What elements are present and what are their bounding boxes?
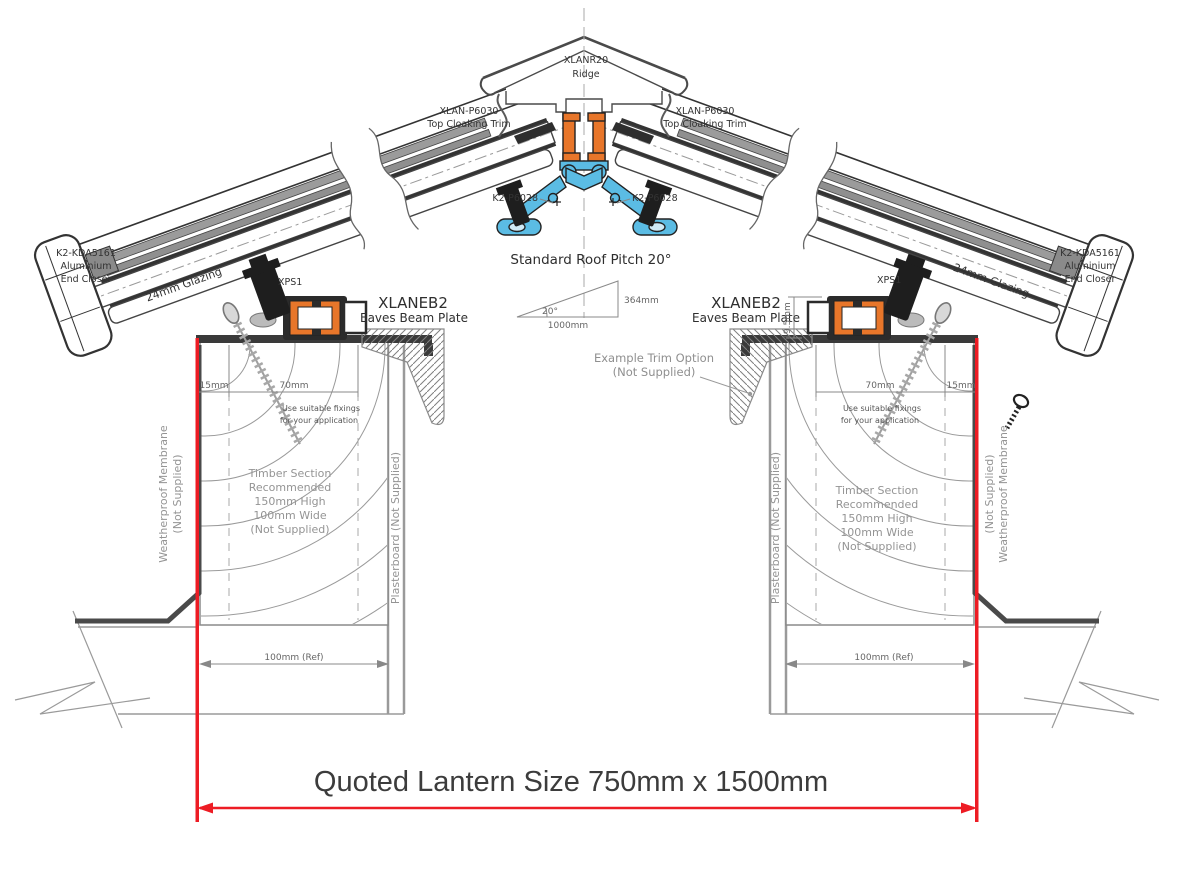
timber-l2-left: Recommended (249, 481, 332, 494)
timber-l3-left: 150mm High (254, 495, 325, 508)
dim-15-right: 15mm (947, 381, 976, 391)
plasterboard-left: Plasterboard (Not Supplied) (389, 452, 402, 604)
timber-l4-left: 100mm Wide (253, 509, 327, 522)
technical-drawing-page: XLANR20 Ridge XLAN-P6030 Top Cloaking Tr… (0, 0, 1184, 872)
timber-l4-right: 100mm Wide (840, 526, 914, 539)
dim-70-right: 70mm (866, 381, 895, 391)
eaves-code-right: XLANEB2 (711, 294, 781, 312)
xps-label-left: XPS1 (278, 277, 302, 288)
membrane-l2-left: (Not Supplied) (171, 454, 184, 533)
dim-70-left: 70mm (280, 381, 309, 391)
cloaking-code-left: XLAN-P6030 (440, 106, 499, 117)
end-closer-l2-left: Aluminium (61, 261, 112, 272)
membrane-l2-right: (Not Supplied) (983, 454, 996, 533)
cloaking-name-right: Top Cloaking Trim (662, 119, 746, 130)
timber-l1-right: Timber Section (835, 484, 919, 497)
end-closer-l2-right: Aluminium (1065, 261, 1116, 272)
plate-code-left: K2-P6028 (492, 193, 538, 204)
pitch-angle: 20° (542, 307, 558, 317)
fixings-l2-right: for your application (841, 416, 919, 425)
end-closer-l3-right: End Closer (1065, 274, 1116, 285)
timber-l5-left: (Not Supplied) (250, 523, 329, 536)
quoted-size-label: Quoted Lantern Size 750mm x 1500mm (314, 766, 828, 798)
loose-screw-icon (1007, 392, 1030, 428)
trim-option-l2: (Not Supplied) (613, 365, 696, 379)
plate-code-right: K2-P6028 (632, 193, 678, 204)
eaves-code-left: XLANEB2 (378, 294, 448, 312)
end-closer-code-left: K2-KDA5161 (56, 248, 116, 259)
end-closer-l3-left: End Closer (61, 274, 112, 285)
ridge-code-label: XLANR20 (564, 55, 608, 66)
membrane-l1-left: Weatherproof Membrane (157, 425, 170, 563)
dim-15-left: 15mm (200, 381, 229, 391)
pitch-run: 1000mm (548, 321, 588, 331)
pitch-note: Standard Roof Pitch 20° (510, 252, 671, 268)
membrane-l1-right: Weatherproof Membrane (997, 425, 1010, 563)
timber-l5-right: (Not Supplied) (837, 540, 916, 553)
eaves-name-left: Eaves Beam Plate (360, 311, 468, 325)
fixings-l1-left: Use suitable fixings (282, 404, 360, 413)
xps-label-right: XPS1 (877, 275, 901, 286)
lantern-section-drawing: XLANR20 Ridge XLAN-P6030 Top Cloaking Tr… (0, 0, 1184, 872)
quoted-size-dimension (197, 803, 977, 814)
pitch-triangle (517, 281, 618, 317)
timber-l2-right: Recommended (836, 498, 919, 511)
dim-195-right: 19.5mm (783, 302, 793, 340)
cloaking-name-left: Top Cloaking Trim (426, 119, 510, 130)
dim-100-left: 100mm (Ref) (264, 653, 323, 663)
timber-l1-left: Timber Section (248, 467, 332, 480)
fixings-l1-right: Use suitable fixings (843, 404, 921, 413)
fixings-l2-left: for your application (280, 416, 358, 425)
cloaking-code-right: XLAN-P6030 (676, 106, 735, 117)
end-closer-code-right: K2-KDA5161 (1060, 248, 1120, 259)
pitch-rise: 364mm (624, 296, 659, 306)
trim-option-l1: Example Trim Option (594, 351, 714, 365)
plasterboard-right: Plasterboard (Not Supplied) (769, 452, 782, 604)
dim-100-right: 100mm (Ref) (854, 653, 913, 663)
ridge-name-label: Ridge (572, 69, 599, 80)
timber-l3-right: 150mm High (841, 512, 912, 525)
